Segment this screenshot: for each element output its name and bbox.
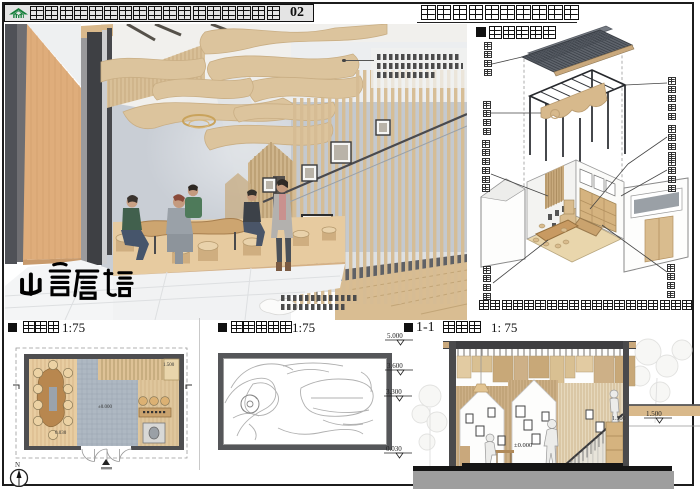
svg-text:5.000: 5.000 xyxy=(387,332,403,340)
svg-text:±0.000: ±0.000 xyxy=(514,442,532,449)
svg-text:±0.000: ±0.000 xyxy=(98,405,112,410)
svg-text:3.600: 3.600 xyxy=(387,362,403,370)
svg-text:3.300: 3.300 xyxy=(386,388,402,396)
svg-text:1.500: 1.500 xyxy=(163,363,175,368)
svg-text:N: N xyxy=(15,461,20,469)
svg-text:0.030: 0.030 xyxy=(55,431,67,436)
svg-text:1.500: 1.500 xyxy=(646,410,662,418)
svg-text:1.500: 1.500 xyxy=(612,416,626,422)
svg-text:0.030: 0.030 xyxy=(386,445,402,453)
